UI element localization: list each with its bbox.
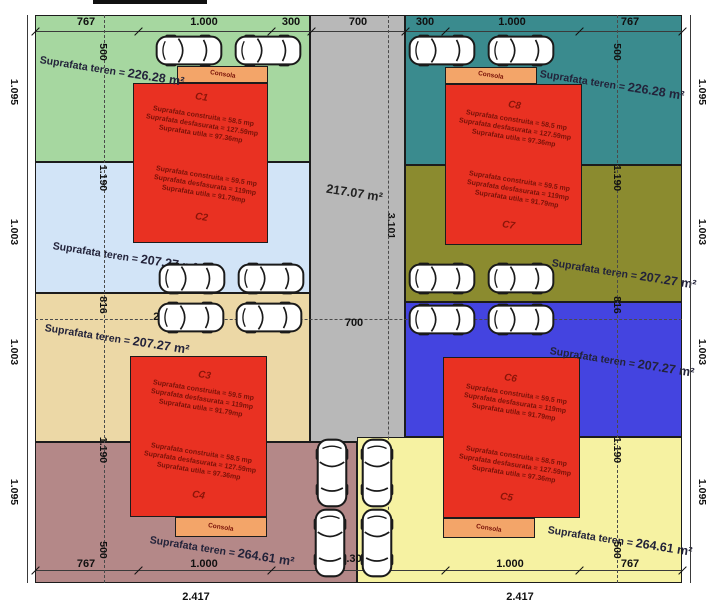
house-label-c8: C8 <box>507 99 521 112</box>
dim-right-1095b: 1.095 <box>695 472 709 512</box>
dim-rinner-816: 816 <box>610 285 624 325</box>
dim-line-right-outer <box>690 15 691 583</box>
road-length-label: 3.101 <box>384 206 398 246</box>
car-icon <box>312 507 348 579</box>
consola-label: Consola <box>478 70 504 81</box>
consola-c5: Consola <box>443 518 535 538</box>
car-icon <box>157 262 227 295</box>
dim-linner-1190: 1.190 <box>96 158 110 198</box>
dim-bottom-1000b: 1.000 <box>496 558 524 570</box>
dim-line-top <box>35 31 682 32</box>
house-label-c5: C5 <box>499 491 513 504</box>
dim-linner-1190b: 1.190 <box>96 430 110 470</box>
car-icon <box>486 262 556 295</box>
car-icon <box>234 301 304 334</box>
dim-linner-500b: 500 <box>96 530 110 570</box>
car-icon <box>314 437 350 509</box>
dim-left-1003: 1.003 <box>7 212 21 252</box>
consola-c4: Consola <box>175 517 267 537</box>
car-icon <box>407 34 477 67</box>
dim-right-1003b: 1.003 <box>695 332 709 372</box>
car-icon <box>486 34 556 67</box>
car-icon <box>486 303 556 336</box>
cropped-title-bar <box>93 0 207 4</box>
car-icon <box>154 34 224 67</box>
dim-top-1000: 1.000 <box>190 16 218 28</box>
dim-top-300b: 300 <box>416 16 434 28</box>
dim-right-1003: 1.003 <box>695 212 709 252</box>
car-icon <box>359 437 395 509</box>
house-label-c7: C7 <box>501 219 515 232</box>
dim-parking-mid: 700 <box>345 317 363 329</box>
dim-right-1095: 1.095 <box>695 72 709 112</box>
car-icon <box>407 262 477 295</box>
dim-rinner-500b: 500 <box>610 530 624 570</box>
house-label-c4: C4 <box>191 489 205 502</box>
dim-top-767b: 767 <box>621 16 639 28</box>
dim-linner-500: 500 <box>96 32 110 72</box>
consola-label: Consola <box>209 69 235 80</box>
car-icon <box>236 262 306 295</box>
dim-left-1003b: 1.003 <box>7 332 21 372</box>
car-icon <box>407 303 477 336</box>
dim-rinner-1190b: 1.190 <box>610 430 624 470</box>
house-label-c6: C6 <box>503 372 517 385</box>
consola-c8: Consola <box>445 67 537 84</box>
dim-line-left-outer <box>27 15 28 583</box>
dim-top-300: 300 <box>282 16 300 28</box>
dim-total-right: 2.417 <box>506 591 534 600</box>
site-plan: Consola Consola Consola Consola C1 Supra… <box>0 0 715 600</box>
dim-rinner-500: 500 <box>610 32 624 72</box>
car-icon <box>156 301 226 334</box>
consola-label: Consola <box>208 522 234 533</box>
dim-total-left: 2.417 <box>182 591 210 600</box>
dim-top-700: 700 <box>349 16 367 28</box>
dim-left-1095: 1.095 <box>7 72 21 112</box>
house-label-c3: C3 <box>197 369 211 382</box>
dim-bottom-1000: 1.000 <box>190 558 218 570</box>
consola-c1: Consola <box>177 66 268 83</box>
dim-linner-816: 816 <box>96 285 110 325</box>
dim-left-1095b: 1.095 <box>7 472 21 512</box>
house-label-c2: C2 <box>194 211 208 224</box>
car-icon <box>359 507 395 579</box>
house-label-c1: C1 <box>194 91 208 104</box>
dim-top-1000b: 1.000 <box>498 16 526 28</box>
dim-rinner-1190: 1.190 <box>610 158 624 198</box>
car-icon <box>233 34 303 67</box>
consola-label: Consola <box>476 523 502 534</box>
dim-bottom-767: 767 <box>77 558 95 570</box>
dim-top-767: 767 <box>77 16 95 28</box>
